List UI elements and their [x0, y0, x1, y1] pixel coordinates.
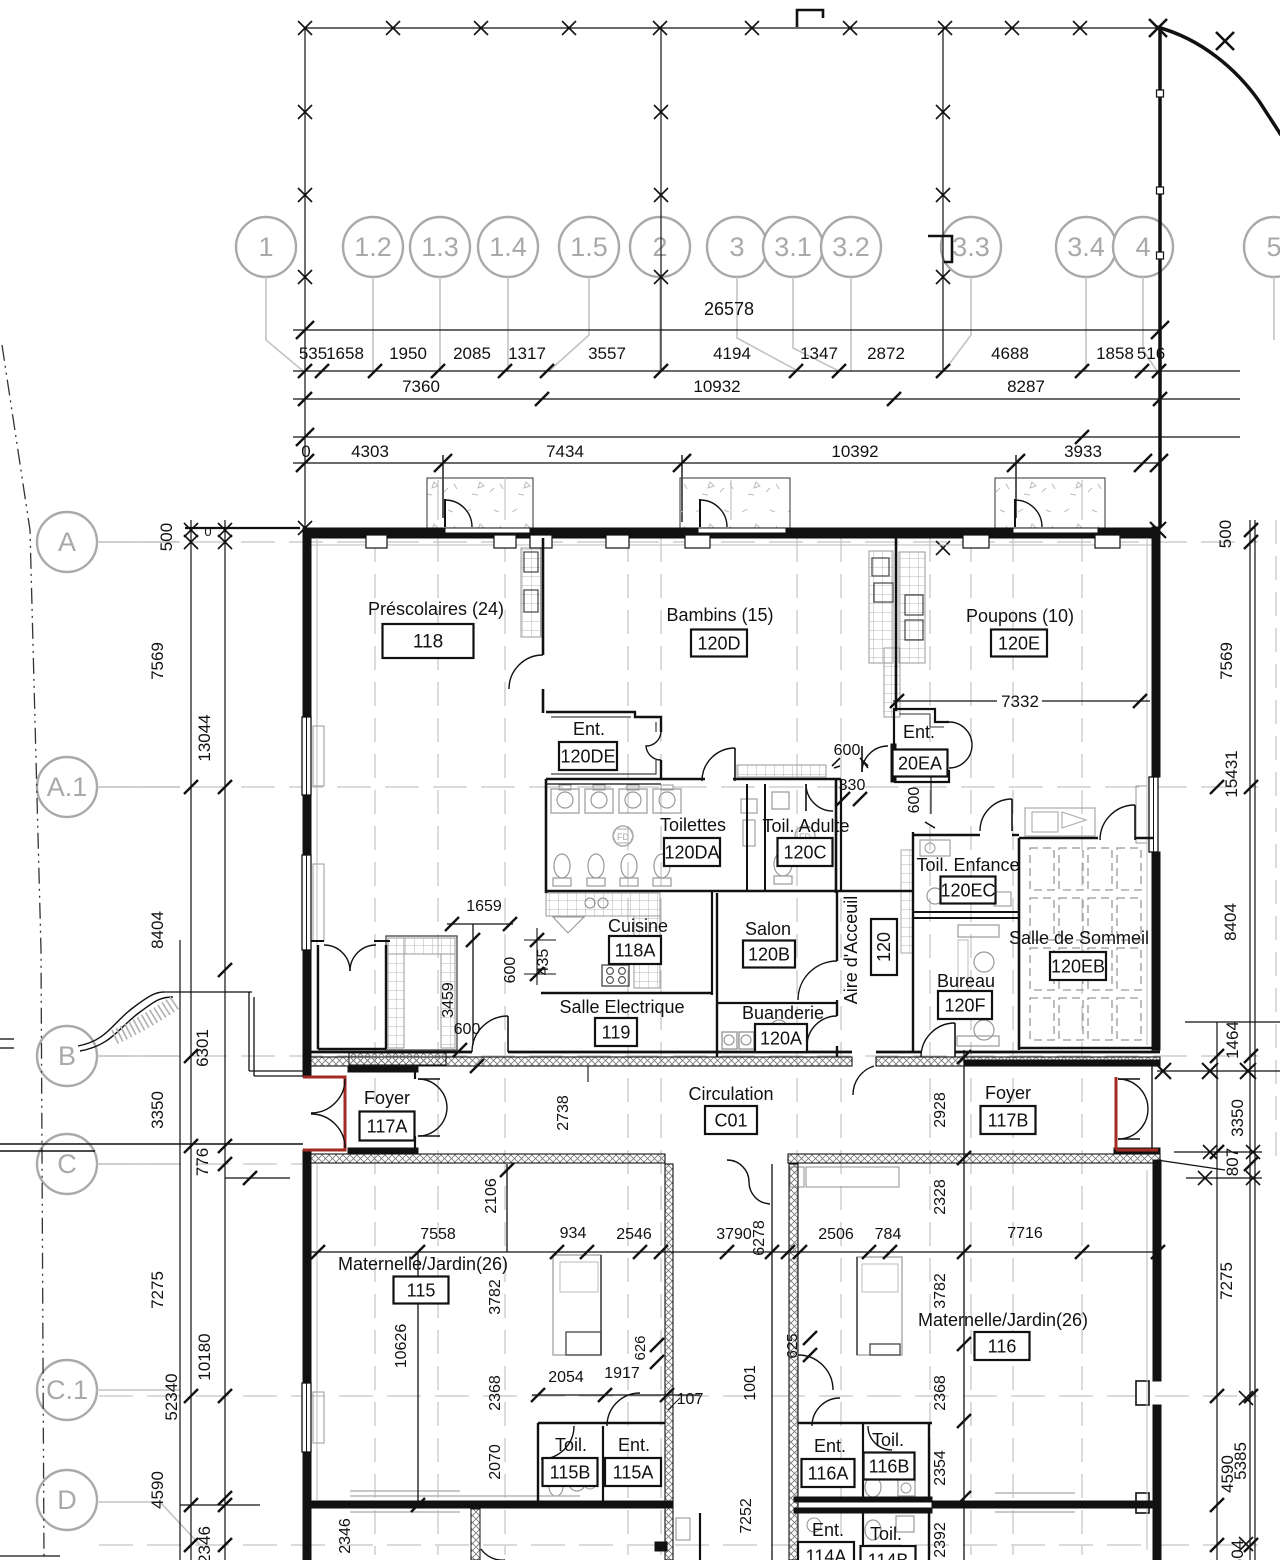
svg-text:Aire d'Acceuil: Aire d'Acceuil [841, 896, 861, 1004]
svg-text:516: 516 [1137, 344, 1165, 363]
svg-text:7332: 7332 [1001, 692, 1039, 711]
svg-text:52340: 52340 [162, 1373, 181, 1420]
svg-text:10932: 10932 [693, 377, 740, 396]
svg-text:625: 625 [784, 1333, 801, 1358]
svg-text:7716: 7716 [1007, 1225, 1043, 1242]
svg-text:10626: 10626 [393, 1324, 410, 1369]
svg-text:5: 5 [1266, 232, 1280, 262]
svg-text:7434: 7434 [546, 442, 584, 461]
svg-text:117A: 117A [367, 1116, 408, 1136]
svg-text:600: 600 [906, 787, 923, 814]
svg-text:600: 600 [502, 957, 519, 984]
svg-text:Ent.: Ent. [814, 1436, 846, 1456]
svg-text:FD: FD [617, 832, 629, 842]
svg-text:807: 807 [1223, 1148, 1242, 1176]
svg-text:120EB: 120EB [1051, 956, 1105, 976]
svg-text:C01: C01 [714, 1110, 747, 1130]
svg-text:2738: 2738 [555, 1095, 572, 1131]
svg-text:2106: 2106 [483, 1178, 500, 1214]
svg-text:1464: 1464 [1223, 1021, 1242, 1059]
svg-text:2506: 2506 [818, 1226, 854, 1243]
svg-text:B: B [58, 1041, 76, 1071]
svg-text:626: 626 [632, 1335, 649, 1360]
svg-text:1.5: 1.5 [570, 232, 608, 262]
svg-text:2354: 2354 [932, 1450, 949, 1486]
svg-text:Toil.: Toil. [872, 1430, 904, 1450]
svg-text:Toil.: Toil. [555, 1435, 587, 1455]
svg-text:7569: 7569 [148, 642, 167, 680]
svg-text:120EC: 120EC [940, 880, 995, 900]
svg-text:3782: 3782 [487, 1279, 504, 1315]
svg-text:2: 2 [652, 232, 667, 262]
svg-text:3350: 3350 [1228, 1099, 1247, 1137]
svg-text:5385: 5385 [1231, 1442, 1250, 1480]
svg-text:1347: 1347 [800, 344, 838, 363]
svg-text:3.4: 3.4 [1067, 232, 1105, 262]
svg-text:A: A [58, 527, 76, 557]
svg-text:3459: 3459 [440, 982, 457, 1018]
svg-text:2368: 2368 [487, 1375, 504, 1411]
svg-text:Bambins (15): Bambins (15) [666, 605, 773, 625]
svg-text:7360: 7360 [402, 377, 440, 396]
svg-text:3782: 3782 [932, 1273, 949, 1309]
svg-text:776: 776 [193, 1148, 212, 1176]
svg-text:600: 600 [454, 1021, 481, 1038]
svg-text:1659: 1659 [466, 898, 502, 915]
svg-text:116: 116 [988, 1336, 1017, 1356]
svg-text:1658: 1658 [326, 344, 364, 363]
svg-text:Toil. Enfance: Toil. Enfance [916, 855, 1019, 875]
svg-text:115B: 115B [550, 1462, 591, 1482]
svg-text:C.1: C.1 [46, 1375, 88, 1405]
svg-text:Toilettes: Toilettes [660, 815, 726, 835]
svg-text:Ent.: Ent. [812, 1520, 844, 1540]
svg-text:8404: 8404 [148, 911, 167, 949]
svg-text:Préscolaires (24): Préscolaires (24) [368, 599, 504, 619]
svg-text:3.3: 3.3 [952, 232, 990, 262]
svg-text:3933: 3933 [1064, 442, 1102, 461]
svg-text:934: 934 [560, 1225, 587, 1242]
svg-text:1917: 1917 [604, 1365, 640, 1382]
svg-text:120A: 120A [760, 1028, 802, 1048]
svg-text:120E: 120E [998, 633, 1040, 653]
svg-text:115A: 115A [613, 1462, 654, 1482]
svg-text:118: 118 [413, 632, 443, 653]
svg-text:4590: 4590 [148, 1471, 167, 1509]
svg-text:500: 500 [157, 523, 176, 551]
svg-text:Salle Electrique: Salle Electrique [559, 997, 684, 1017]
svg-text:Maternelle/Jardin(26): Maternelle/Jardin(26) [338, 1254, 508, 1274]
svg-text:4: 4 [1135, 232, 1150, 262]
svg-text:6301: 6301 [193, 1029, 212, 1067]
svg-text:120F: 120F [944, 995, 985, 1015]
svg-text:D: D [57, 1485, 77, 1515]
svg-text:2546: 2546 [616, 1226, 652, 1243]
svg-text:0: 0 [204, 524, 211, 539]
svg-text:120: 120 [874, 932, 894, 962]
svg-text:2368: 2368 [932, 1375, 949, 1411]
svg-text:3350: 3350 [148, 1091, 167, 1129]
svg-text:Salon: Salon [745, 919, 791, 939]
svg-text:1317: 1317 [508, 344, 546, 363]
svg-text:535: 535 [299, 344, 327, 363]
svg-text:7275: 7275 [1217, 1262, 1236, 1300]
svg-text:120DA: 120DA [664, 842, 719, 862]
svg-text:2346: 2346 [195, 1526, 214, 1560]
svg-text:115: 115 [407, 1280, 436, 1300]
svg-text:Buanderie: Buanderie [742, 1003, 824, 1023]
svg-text:Ent.: Ent. [903, 722, 935, 742]
svg-text:3: 3 [729, 232, 744, 262]
svg-text:107: 107 [677, 1391, 704, 1408]
svg-text:304: 304 [1228, 1540, 1247, 1560]
svg-text:3790: 3790 [716, 1226, 752, 1243]
svg-text:6278: 6278 [751, 1220, 768, 1256]
svg-text:114A: 114A [806, 1546, 847, 1560]
svg-text:Cuisine: Cuisine [608, 916, 668, 936]
svg-text:1.3: 1.3 [421, 232, 459, 262]
svg-text:3557: 3557 [588, 344, 626, 363]
svg-text:8287: 8287 [1007, 377, 1045, 396]
svg-text:Circulation: Circulation [688, 1084, 773, 1104]
svg-text:10180: 10180 [195, 1333, 214, 1380]
svg-text:117B: 117B [988, 1110, 1029, 1130]
svg-text:Salle de Sommeil: Salle de Sommeil [1009, 928, 1149, 948]
svg-text:116A: 116A [808, 1463, 849, 1483]
svg-text:Ent.: Ent. [573, 719, 605, 739]
svg-text:114B: 114B [868, 1550, 909, 1560]
svg-text:2328: 2328 [932, 1179, 949, 1215]
svg-text:8404: 8404 [1221, 903, 1240, 941]
svg-text:15431: 15431 [1222, 750, 1241, 797]
svg-text:2346: 2346 [337, 1518, 354, 1554]
svg-text:500: 500 [1216, 520, 1235, 548]
svg-text:120DE: 120DE [560, 746, 615, 766]
svg-text:26578: 26578 [704, 299, 754, 319]
svg-text:2928: 2928 [932, 1092, 949, 1128]
svg-text:Ent.: Ent. [618, 1435, 650, 1455]
svg-text:Poupons (10): Poupons (10) [966, 606, 1074, 626]
svg-text:120D: 120D [697, 633, 740, 653]
svg-text:13044: 13044 [195, 714, 214, 761]
svg-text:1950: 1950 [389, 344, 427, 363]
svg-text:120C: 120C [783, 842, 826, 862]
svg-text:120B: 120B [748, 944, 790, 964]
svg-text:1.4: 1.4 [489, 232, 527, 262]
svg-text:3.2: 3.2 [832, 232, 870, 262]
svg-text:20EA: 20EA [898, 753, 942, 773]
svg-text:1: 1 [258, 232, 273, 262]
svg-text:7252: 7252 [738, 1498, 755, 1534]
svg-text:119: 119 [602, 1022, 631, 1042]
svg-text:Toil. Adulte: Toil. Adulte [762, 816, 849, 836]
svg-text:Foyer: Foyer [364, 1088, 410, 1108]
svg-text:Bureau: Bureau [937, 971, 995, 991]
svg-text:7558: 7558 [420, 1226, 456, 1243]
svg-text:Foyer: Foyer [985, 1083, 1031, 1103]
svg-text:2872: 2872 [867, 344, 905, 363]
svg-text:2070: 2070 [487, 1444, 504, 1480]
svg-text:4194: 4194 [713, 344, 751, 363]
svg-text:118A: 118A [615, 940, 656, 960]
svg-text:7275: 7275 [148, 1271, 167, 1309]
svg-text:1.2: 1.2 [354, 232, 392, 262]
svg-text:600: 600 [834, 742, 861, 759]
svg-text:10392: 10392 [831, 442, 878, 461]
svg-text:330: 330 [839, 777, 866, 794]
svg-text:Toil.: Toil. [870, 1524, 902, 1544]
svg-text:A.1: A.1 [47, 772, 88, 802]
svg-text:Maternelle/Jardin(26): Maternelle/Jardin(26) [918, 1310, 1088, 1330]
svg-text:C: C [57, 1149, 77, 1179]
svg-text:2392: 2392 [932, 1522, 949, 1558]
svg-text:7569: 7569 [1217, 642, 1236, 680]
svg-text:2054: 2054 [548, 1369, 584, 1386]
svg-text:4688: 4688 [991, 344, 1029, 363]
svg-text:1858: 1858 [1096, 344, 1134, 363]
svg-text:2085: 2085 [453, 344, 491, 363]
svg-text:4303: 4303 [351, 442, 389, 461]
svg-text:3.1: 3.1 [774, 232, 812, 262]
svg-text:116B: 116B [869, 1456, 910, 1476]
svg-text:1001: 1001 [742, 1365, 759, 1401]
svg-text:784: 784 [875, 1226, 902, 1243]
